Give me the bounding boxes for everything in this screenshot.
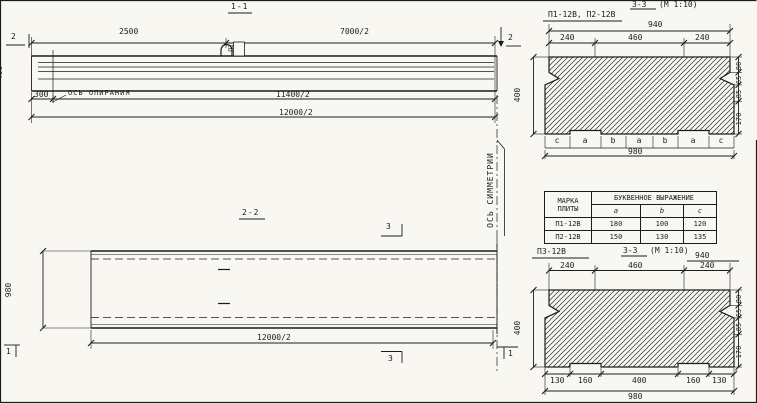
cross-top-dim-980: 980 [628,147,642,156]
plate-spec-table: МАРКА ПЛИТЫ БУКВЕННОЕ ВЫРАЖЕНИЕ a b c П1… [544,191,717,244]
cb-dim-130l: 130 [550,376,564,385]
row-mark: П1-12В [545,218,592,231]
cross-bottom-dim-940: 940 [695,251,709,260]
cross-bottom-dim-240l: 240 [560,261,574,270]
symmetry-axis-label: ОСЬ СИММЕТРИИ [486,147,495,233]
dim-300: 300 [34,90,48,99]
letter-a-1: a [581,136,589,145]
cross-bottom-label: П3-12В [537,247,566,256]
letter-c-1: c [553,136,561,145]
section-1-1-title: 1-1 [231,2,248,11]
bearing-axis-label: ОСЬ ОПИРАНИЯ [68,89,131,97]
cross-bottom-title: 3-3 [623,246,637,255]
cross-bottom-dim-460: 460 [628,261,642,270]
blueprint-canvas: 1-1 2500 7000/2 2 2 400 300 ОСЬ ОПИРАНИЯ… [0,0,757,404]
cross-bottom-dim-65: 65 [735,307,743,319]
letter-c-2: c [717,136,725,145]
cross-bottom-dim-85: 85 [735,321,743,333]
cross-bottom-scale: (М 1:10) [650,246,689,255]
section-1-1-lines [6,13,521,145]
table-col-header: МАРКА ПЛИТЫ [545,192,592,218]
cross-bottom-dim-400: 400 [513,318,522,338]
section-marker-1-left: 1 [6,347,11,356]
table-col-c: c [684,205,717,218]
cross-bottom-dim-980: 980 [628,392,642,401]
dim-2500: 2500 [119,27,138,36]
section-marker-2-left: 2 [11,32,16,41]
table-col-b: b [641,205,684,218]
section-marker-2-right: 2 [508,33,513,42]
table-row: П1-12В 180 100 120 [545,218,717,231]
dim-980-plan: 980 [4,281,13,299]
cb-dim-160r: 160 [686,376,700,385]
row-mark: П2-12В [545,231,592,244]
cross-section-bottom-lines [531,256,743,395]
section-marker-1-right: 1 [508,349,513,358]
row-c: 135 [684,231,717,244]
cross-top-title: 3-3 [632,0,646,9]
symmetry-axis-flag [497,140,505,238]
cross-top-dim-240r: 240 [695,33,709,42]
dim-7000-2: 7000/2 [340,27,369,36]
letter-b-1: b [609,136,617,145]
cross-top-dim-85: 85 [735,88,743,100]
row-c: 120 [684,218,717,231]
letter-a-3: a [689,136,697,145]
section-2-2-lines [4,219,518,372]
cross-top-dim-240l: 240 [560,33,574,42]
cross-bottom-dim-80: 80 [735,293,743,305]
row-b: 100 [641,218,684,231]
section-2-2-title: 2-2 [242,208,259,217]
lifting-loop-mark: ПЗ [228,43,235,53]
table-row: П2-12В 150 130 135 [545,231,717,244]
cb-dim-400: 400 [632,376,646,385]
cross-top-dim-80: 80 [735,60,743,72]
row-a: 150 [592,231,641,244]
row-a: 180 [592,218,641,231]
dim-11400-2: 11400/2 [276,90,310,99]
cross-top-dim-400: 400 [513,85,522,105]
cb-dim-160l: 160 [578,376,592,385]
cross-bottom-dim-170: 170 [735,344,743,360]
cb-dim-130r: 130 [712,376,726,385]
dim-12000-2-elevation: 12000/2 [279,108,313,117]
letter-a-2: a [635,136,643,145]
row-b: 130 [641,231,684,244]
dim-12000-2-plan: 12000/2 [257,333,291,342]
table-col-a: a [592,205,641,218]
cross-top-scale: (М 1:10) [659,0,698,9]
section-marker-3-bottom: 3 [388,354,393,363]
cross-bottom-dim-240r: 240 [700,261,714,270]
cross-top-dim-460: 460 [628,33,642,42]
cross-top-dim-170: 170 [735,111,743,127]
section-marker-3-top: 3 [386,222,391,231]
dim-400-elevation: 400 [0,64,4,82]
cross-top-dim-65: 65 [735,74,743,86]
cross-top-label: П1-12В, П2-12В [548,10,615,19]
table-group-header: БУКВЕННОЕ ВЫРАЖЕНИЕ [592,192,717,205]
letter-b-2: b [661,136,669,145]
cross-top-dim-940: 940 [648,20,662,29]
